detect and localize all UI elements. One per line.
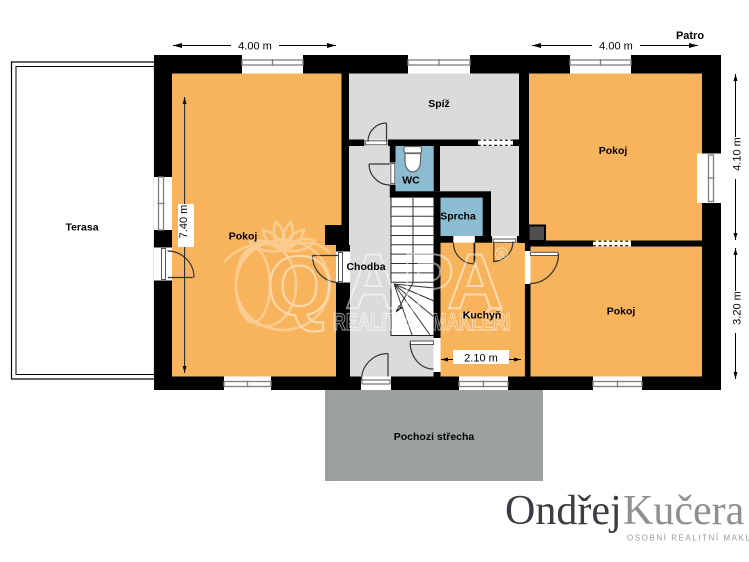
svg-text:7.40 m: 7.40 m [178, 205, 190, 239]
svg-text:Sprcha: Sprcha [440, 211, 476, 223]
svg-text:2.10 m: 2.10 m [464, 353, 498, 365]
svg-text:Kučera: Kučera [623, 488, 745, 534]
svg-text:Kuchyň: Kuchyň [463, 310, 502, 322]
svg-text:Pokoj: Pokoj [229, 231, 258, 243]
svg-text:4.00 m: 4.00 m [599, 41, 633, 53]
svg-text:OSOBNÍ REALITNÍ MAKLÉŘ: OSOBNÍ REALITNÍ MAKLÉŘ [627, 534, 749, 543]
svg-text:Q: Q [267, 239, 332, 333]
svg-text:4.10 m: 4.10 m [732, 137, 744, 171]
svg-text:Chodba: Chodba [346, 261, 385, 273]
svg-text:Pokoj: Pokoj [607, 306, 636, 318]
svg-text:Ondřej: Ondřej [505, 488, 622, 534]
svg-text:Spíž: Spíž [428, 98, 450, 110]
svg-text:Pokoj: Pokoj [599, 145, 628, 157]
svg-text:Terasa: Terasa [65, 222, 98, 234]
svg-text:Pochozi střecha: Pochozi střecha [394, 431, 475, 443]
svg-text:R: R [498, 250, 505, 260]
svg-text:Patro: Patro [676, 30, 704, 42]
svg-text:4.00 m: 4.00 m [238, 41, 272, 53]
svg-text:WC: WC [402, 175, 420, 187]
svg-text:REALITNÍ: REALITNÍ [333, 310, 416, 336]
svg-text:3.20 m: 3.20 m [732, 291, 744, 325]
